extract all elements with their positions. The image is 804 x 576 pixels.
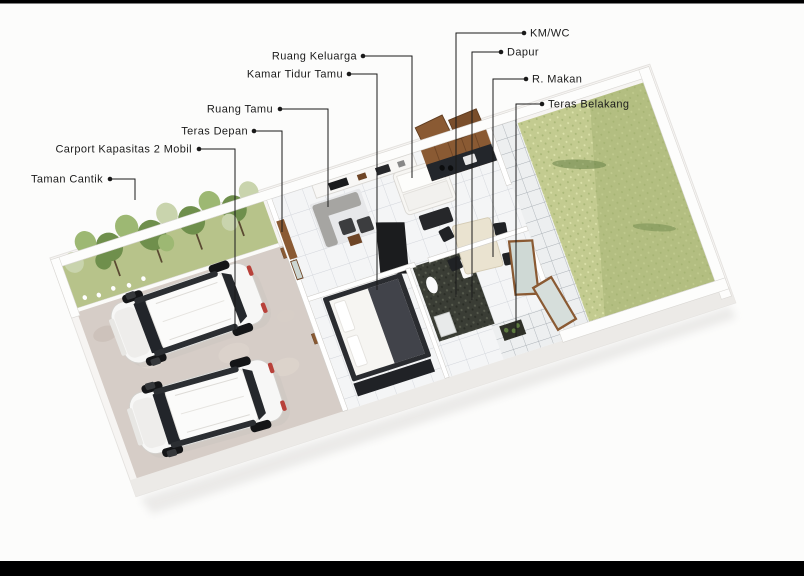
floorplan-figure: KM/WCDapurR. MakanTeras BelakangRuang Ke… <box>0 0 804 576</box>
label-text-taman-cantik: Taman Cantik <box>31 174 103 186</box>
label-text-r-makan: R. Makan <box>532 74 582 86</box>
leader-bullet-dapur <box>499 50 504 55</box>
leader-bullet-ruang-tamu <box>278 107 283 112</box>
leader-bullet-ruang-keluarga <box>361 54 366 59</box>
label-text-carport-kapasitas-2-mobil: Carport Kapasitas 2 Mobil <box>55 144 192 156</box>
leader-bullet-carport-kapasitas-2-mobil <box>197 147 202 152</box>
label-text-teras-belakang: Teras Belakang <box>548 99 629 111</box>
bottom-letterbox-bar <box>0 561 804 576</box>
leader-bullet-teras-belakang <box>540 102 545 107</box>
top-letterbox-bar <box>0 0 804 4</box>
label-text-kamar-tidur-tamu: Kamar Tidur Tamu <box>247 69 343 81</box>
label-text-ruang-keluarga: Ruang Keluarga <box>272 51 358 63</box>
leader-bullet-km-wc <box>522 31 527 36</box>
leader-bullet-teras-depan <box>252 129 257 134</box>
leader-bullet-taman-cantik <box>108 177 113 182</box>
screenshot-stage: KM/WCDapurR. MakanTeras BelakangRuang Ke… <box>0 0 804 576</box>
label-text-ruang-tamu: Ruang Tamu <box>207 104 273 116</box>
leader-bullet-r-makan <box>524 77 529 82</box>
leader-bullet-kamar-tidur-tamu <box>347 72 352 77</box>
label-text-dapur: Dapur <box>507 47 539 59</box>
label-text-teras-depan: Teras Depan <box>181 126 248 138</box>
label-text-km-wc: KM/WC <box>530 28 570 40</box>
